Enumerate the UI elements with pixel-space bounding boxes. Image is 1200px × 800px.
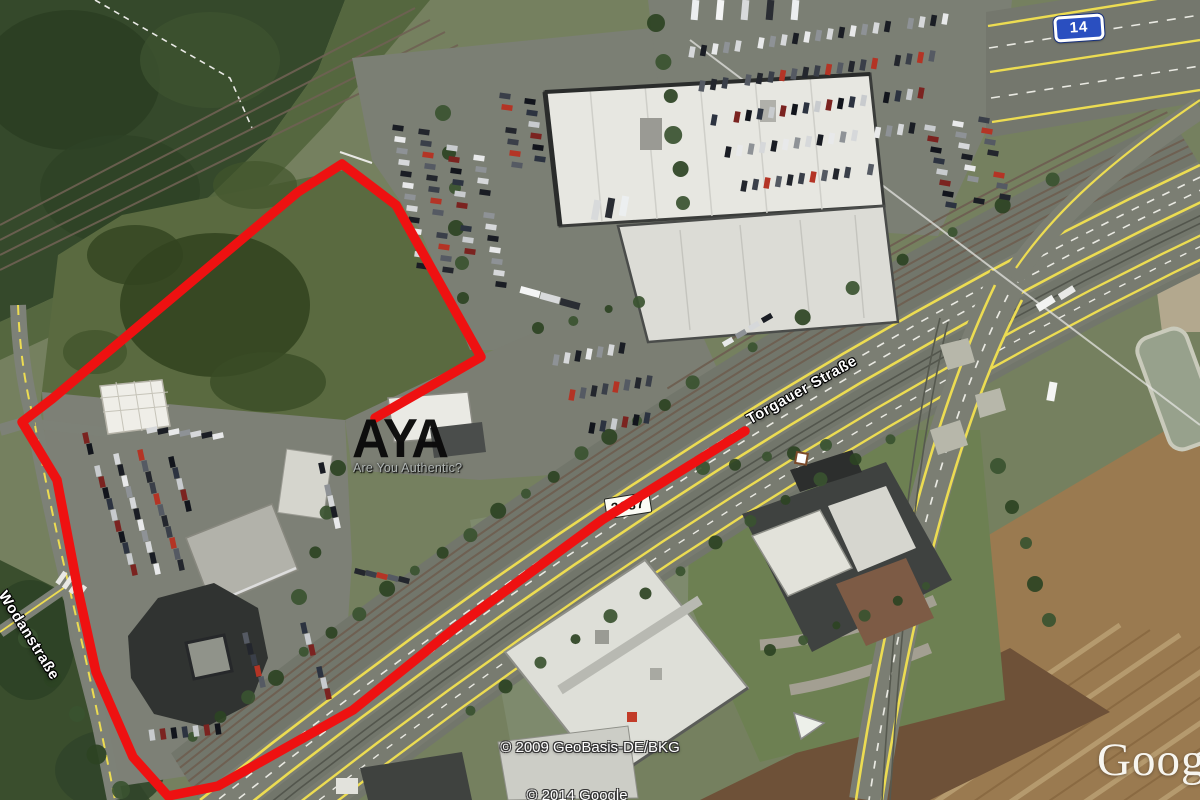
watermark-subtitle: Are You Authentic? xyxy=(353,461,462,475)
route-overlay xyxy=(0,0,1200,800)
google-logo: Google xyxy=(1097,733,1200,787)
rail-station-square-icon xyxy=(795,452,808,465)
watermark-title: AYA xyxy=(352,412,447,464)
imagery-attribution: © 2009 GeoBasis-DE/BKG xyxy=(460,739,720,756)
map-data-attribution: © 2014 Google xyxy=(477,787,677,800)
red-route-outline xyxy=(22,164,745,796)
map-markers xyxy=(794,452,824,739)
motorway-shield-14: 14 xyxy=(1053,13,1105,42)
triangle-marker-icon xyxy=(794,713,824,739)
map-canvas[interactable]: 2187 Torgauer Straße Wodanstraße 14 AYA … xyxy=(0,0,1200,800)
